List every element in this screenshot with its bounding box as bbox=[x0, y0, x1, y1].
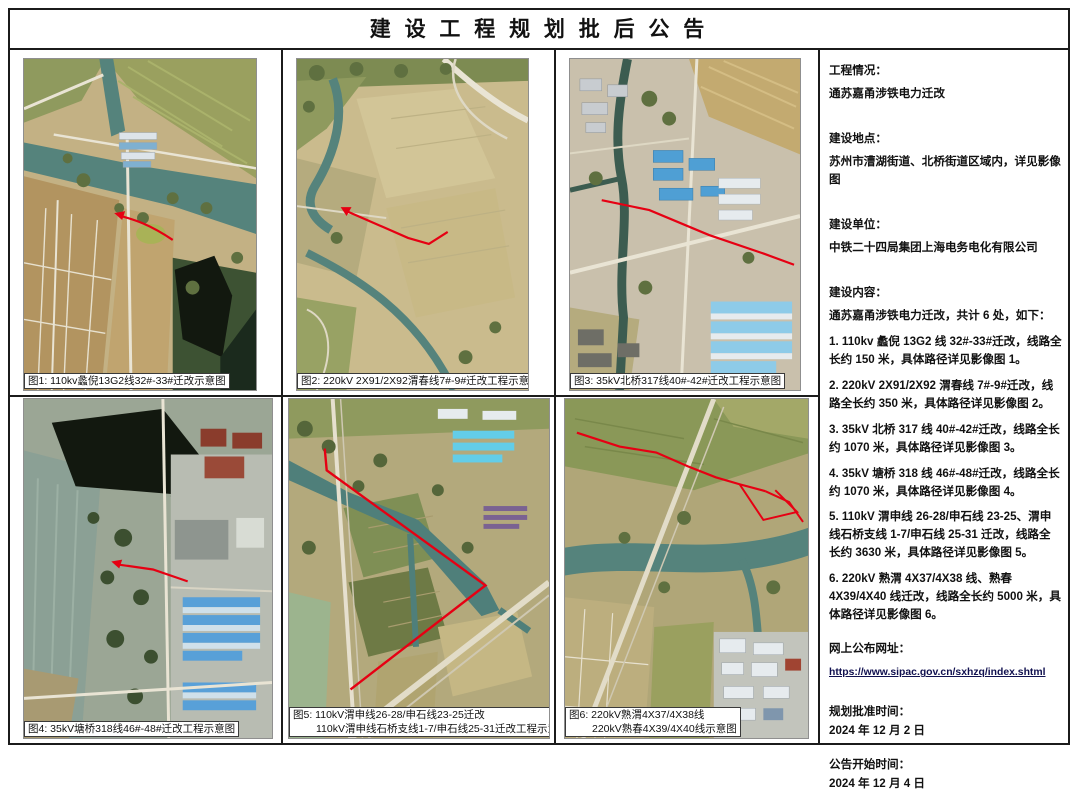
content-intro: 通苏嘉甬涉铁电力迁改，共计 6 处，如下： bbox=[829, 307, 1062, 325]
figure-2-caption: 图2: 220kV 2X91/2X92渭春线7#-9#迁改工程示意图 bbox=[297, 373, 529, 389]
project-status-value: 通苏嘉甬涉铁电力迁改 bbox=[829, 85, 1062, 103]
figure-6-caption-line2: 220kV熟春4X39/4X40线示意图 bbox=[569, 722, 737, 736]
satellite-map-3 bbox=[570, 59, 800, 390]
project-status-label: 工程情况： bbox=[829, 62, 1062, 80]
figure-2-map: 图2: 220kV 2X91/2X92渭春线7#-9#迁改工程示意图 bbox=[296, 58, 529, 391]
content-item-6: 6. 220kV 熟渭 4X37/4X38 线、熟春 4X39/4X40 线迁改… bbox=[829, 570, 1062, 624]
figure-6-caption: 图6: 220kV熟渭4X37/4X38线 220kV熟春4X39/4X40线示… bbox=[565, 707, 741, 737]
announcement-sheet: 建 设 工 程 规 划 批 后 公 告 bbox=[8, 8, 1070, 745]
content-item-1: 1. 110kv 蠡倪 13G2 线 32#-33#迁改，线路全长约 150 米… bbox=[829, 333, 1062, 369]
announcement-url-link[interactable]: https://www.sipac.gov.cn/sxhzq/index.sht… bbox=[829, 667, 1046, 678]
page-title: 建 设 工 程 规 划 批 后 公 告 bbox=[10, 10, 1068, 50]
approval-time-value: 2024 年 12 月 2 日 bbox=[829, 722, 1062, 741]
announce-start-value: 2024 年 12 月 4 日 bbox=[829, 775, 1062, 794]
figure-6-map: 图6: 220kV熟渭4X37/4X38线 220kV熟春4X39/4X40线示… bbox=[564, 398, 809, 739]
location-label: 建设地点： bbox=[829, 130, 1062, 148]
figure-1-map: 图1: 110kv蠡倪13G2线32#-33#迁改示意图 bbox=[23, 58, 257, 391]
satellite-map-5 bbox=[289, 399, 549, 738]
figure-3-map: 图3: 35kV北桥317线40#-42#迁改工程示意图 bbox=[569, 58, 801, 391]
figure-6-caption-line1: 图6: 220kV熟渭4X37/4X38线 bbox=[569, 708, 737, 722]
satellite-map-1 bbox=[24, 59, 256, 390]
builder-label: 建设单位： bbox=[829, 216, 1062, 234]
website-label: 网上公布网址： bbox=[829, 640, 1062, 658]
satellite-map-6 bbox=[565, 399, 808, 738]
figure-5-caption-line2: 110kV渭申线石桥支线1-7/申石线25-31迁改工程示意图 bbox=[293, 722, 550, 736]
figure-4-caption: 图4: 35kV塘桥318线46#-48#迁改工程示意图 bbox=[24, 721, 239, 737]
content-item-2: 2. 220kV 2X91/2X92 渭春线 7#-9#迁改，线路全长约 350… bbox=[829, 377, 1062, 413]
location-value: 苏州市漕湖街道、北桥街道区域内，详见影像图 bbox=[829, 153, 1062, 189]
figure-1-caption: 图1: 110kv蠡倪13G2线32#-33#迁改示意图 bbox=[24, 373, 230, 389]
image-column-2: 图2: 220kV 2X91/2X92渭春线7#-9#迁改工程示意图 bbox=[283, 50, 556, 743]
announce-start-label: 公告开始时间： bbox=[829, 756, 1062, 775]
figure-5-caption: 图5: 110kV渭申线26-28/申石线23-25迁改 110kV渭申线石桥支… bbox=[289, 707, 550, 737]
builder-value: 中铁二十四局集团上海电务电化有限公司 bbox=[829, 239, 1062, 257]
content-item-5: 5. 110kV 渭申线 26-28/申石线 23-25、渭申线石桥支线 1-7… bbox=[829, 508, 1062, 562]
image-column-3: 图3: 35kV北桥317线40#-42#迁改工程示意图 bbox=[556, 50, 820, 743]
content-item-3: 3. 35kV 北桥 317 线 40#-42#迁改，线路全长约 1070 米，… bbox=[829, 421, 1062, 457]
content-item-4: 4. 35kV 塘桥 318 线 46#-48#迁改，线路全长约 1070 米，… bbox=[829, 465, 1062, 501]
image-column-1: 图1: 110kv蠡倪13G2线32#-33#迁改示意图 bbox=[10, 50, 283, 743]
satellite-map-2 bbox=[297, 59, 528, 390]
figure-3-caption: 图3: 35kV北桥317线40#-42#迁改工程示意图 bbox=[570, 373, 785, 389]
figure-4-map: 图4: 35kV塘桥318线46#-48#迁改工程示意图 bbox=[23, 398, 273, 739]
figure-5-caption-line1: 图5: 110kV渭申线26-28/申石线23-25迁改 bbox=[293, 708, 550, 722]
info-panel: 工程情况： 通苏嘉甬涉铁电力迁改 建设地点： 苏州市漕湖街道、北桥街道区域内，详… bbox=[820, 50, 1068, 743]
figure-5-map: 图5: 110kV渭申线26-28/申石线23-25迁改 110kV渭申线石桥支… bbox=[288, 398, 550, 739]
approval-time-label: 规划批准时间： bbox=[829, 703, 1062, 722]
content-label: 建设内容： bbox=[829, 284, 1062, 302]
satellite-map-4 bbox=[24, 399, 272, 738]
